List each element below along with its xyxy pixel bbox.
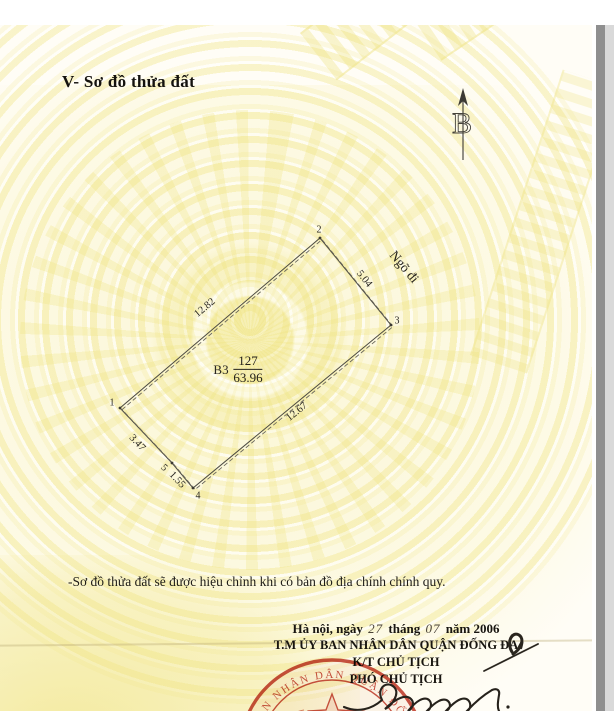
scanned-document: V- Sơ đồ thửa đất B 1 2 3 4 5 12.82 5.04… [0, 0, 614, 711]
signature [0, 0, 614, 711]
